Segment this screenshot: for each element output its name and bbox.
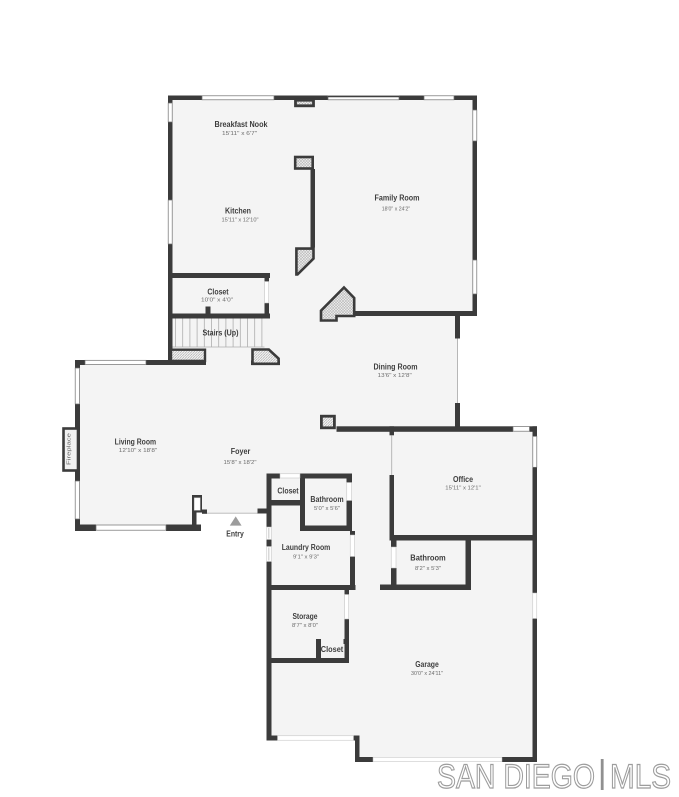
svg-text:5'0" x 5'6": 5'0" x 5'6" — [314, 506, 340, 512]
svg-text:Living Room: Living Room — [115, 438, 157, 447]
svg-text:15'8" x 18'2": 15'8" x 18'2" — [224, 460, 257, 466]
svg-text:15'11" x 12'1": 15'11" x 12'1" — [445, 486, 480, 492]
svg-text:Garage: Garage — [415, 660, 439, 669]
svg-text:Closet: Closet — [277, 486, 298, 495]
svg-text:13'6" x 12'8": 13'6" x 12'8" — [378, 373, 412, 379]
svg-text:18'0" x 24'2": 18'0" x 24'2" — [382, 206, 411, 212]
svg-text:Foyer: Foyer — [231, 447, 251, 456]
svg-text:SAN DIEGO: SAN DIEGO — [437, 758, 595, 796]
svg-text:Family Room: Family Room — [375, 193, 420, 202]
svg-text:8'7" x 8'0": 8'7" x 8'0" — [292, 623, 318, 629]
svg-text:Bathroom: Bathroom — [410, 554, 445, 563]
svg-text:30'0" x 24'11": 30'0" x 24'11" — [411, 671, 443, 677]
svg-text:Bathroom: Bathroom — [310, 495, 343, 504]
svg-text:MLS: MLS — [610, 758, 671, 796]
svg-text:Dining Room: Dining Room — [374, 363, 418, 372]
svg-text:Stairs (Up): Stairs (Up) — [203, 329, 239, 338]
svg-text:Office: Office — [453, 475, 473, 484]
svg-text:Laundry Room: Laundry Room — [282, 543, 331, 552]
svg-text:Storage: Storage — [292, 612, 318, 621]
svg-text:15'11" x 6'7": 15'11" x 6'7" — [222, 131, 257, 137]
svg-text:Breakfast Nook: Breakfast Nook — [215, 120, 268, 129]
svg-text:8'2" x 5'3": 8'2" x 5'3" — [415, 566, 441, 572]
svg-text:Entry: Entry — [226, 529, 244, 538]
svg-text:Fireplace: Fireplace — [67, 433, 73, 465]
svg-text:Closet: Closet — [207, 288, 228, 297]
svg-text:9'1" x 9'3": 9'1" x 9'3" — [293, 554, 319, 560]
svg-text:Kitchen: Kitchen — [225, 207, 251, 216]
svg-text:Closet: Closet — [321, 645, 344, 654]
svg-text:10'0" x 4'0": 10'0" x 4'0" — [201, 298, 233, 304]
svg-text:12'10" x 18'8": 12'10" x 18'8" — [119, 448, 157, 454]
svg-text:15'11" x 12'10": 15'11" x 12'10" — [222, 217, 259, 223]
